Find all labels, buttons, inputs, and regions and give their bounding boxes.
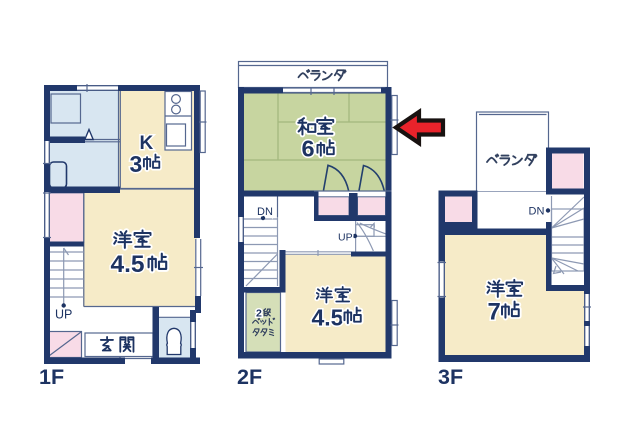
svg-text:6: 6 (302, 136, 315, 162)
svg-text:7: 7 (488, 299, 501, 326)
svg-text:4.5: 4.5 (111, 251, 145, 278)
svg-text:DN: DN (529, 206, 545, 218)
svg-text:3: 3 (130, 151, 143, 177)
svg-text:DN: DN (257, 206, 273, 218)
svg-text:1F: 1F (39, 365, 64, 389)
svg-text:4.5: 4.5 (312, 305, 344, 331)
svg-text:UP: UP (55, 308, 72, 322)
svg-text:2F: 2F (237, 365, 262, 389)
svg-text:3F: 3F (438, 365, 463, 389)
svg-text:2: 2 (256, 308, 262, 320)
svg-text:UP: UP (338, 232, 353, 244)
